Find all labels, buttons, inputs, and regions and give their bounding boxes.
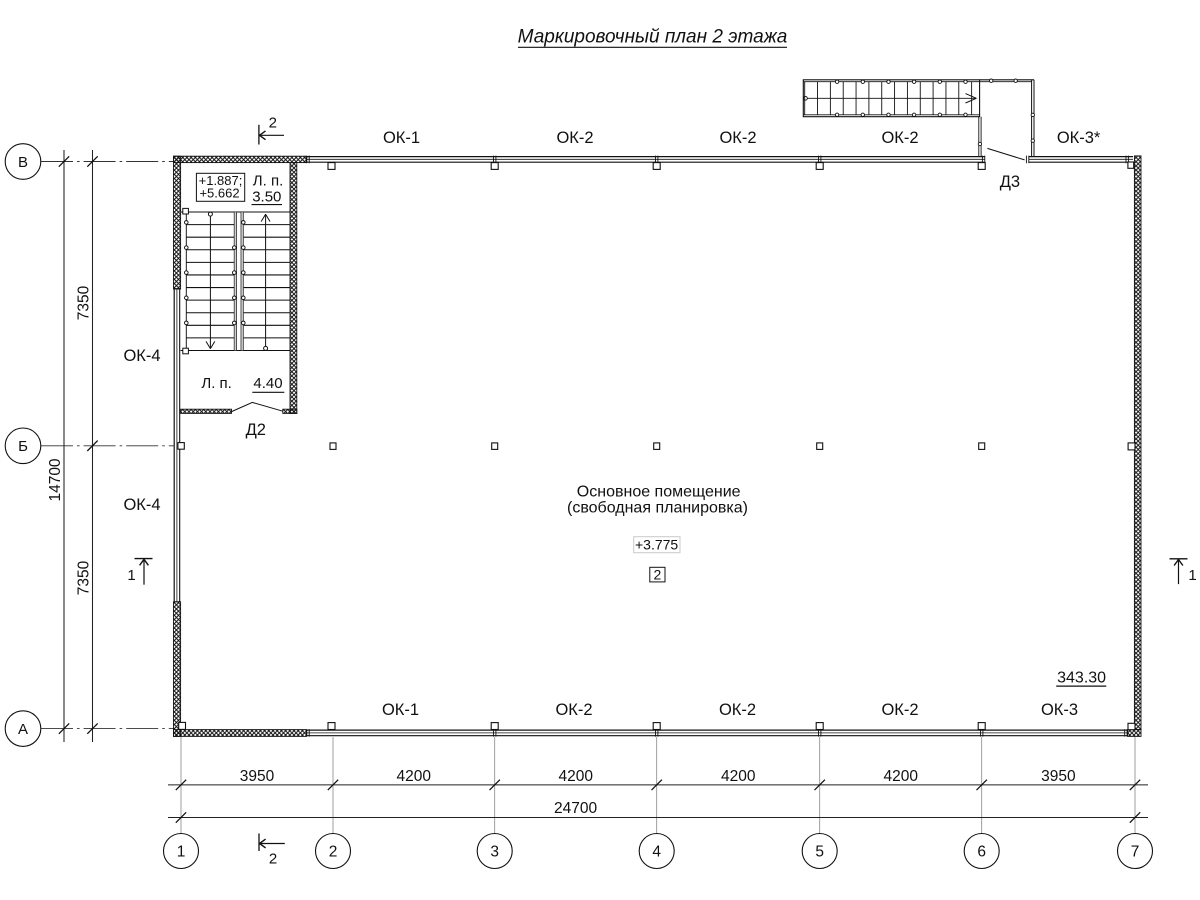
svg-text:3950: 3950 (240, 768, 275, 785)
svg-text:ОК-2: ОК-2 (556, 129, 593, 147)
svg-text:ОК-2: ОК-2 (881, 129, 918, 147)
svg-text:4: 4 (652, 843, 661, 860)
svg-text:4200: 4200 (397, 768, 432, 785)
svg-text:1: 1 (127, 567, 135, 584)
svg-text:Основное помещение: Основное помещение (577, 483, 741, 500)
svg-text:Д3: Д3 (1000, 173, 1020, 191)
svg-text:ОК-1: ОК-1 (383, 129, 420, 147)
svg-text:Л. п.: Л. п. (201, 375, 231, 392)
svg-text:4200: 4200 (558, 768, 593, 785)
svg-text:+3.775: +3.775 (635, 536, 678, 552)
svg-text:4.40: 4.40 (253, 375, 282, 392)
svg-text:Д2: Д2 (246, 421, 266, 439)
svg-text:В: В (18, 154, 28, 171)
svg-text:ОК-1: ОК-1 (382, 701, 419, 719)
svg-text:7: 7 (1131, 843, 1140, 860)
svg-text:Б: Б (18, 438, 28, 455)
svg-text:Л. п.: Л. п. (253, 172, 283, 189)
svg-text:+5.662: +5.662 (199, 186, 239, 201)
svg-text:6: 6 (977, 843, 986, 860)
svg-text:1: 1 (1188, 567, 1196, 584)
svg-text:3950: 3950 (1041, 768, 1076, 785)
svg-text:ОК-2: ОК-2 (719, 701, 756, 719)
svg-text:14700: 14700 (47, 458, 64, 501)
svg-text:3.50: 3.50 (252, 188, 281, 205)
svg-text:А: А (18, 721, 28, 738)
svg-text:ОК-3: ОК-3 (1041, 701, 1078, 719)
svg-text:1: 1 (177, 843, 186, 860)
svg-text:ОК-4: ОК-4 (123, 347, 160, 365)
svg-text:4200: 4200 (721, 768, 756, 785)
svg-text:3: 3 (490, 843, 499, 860)
svg-text:ОК-2: ОК-2 (881, 701, 918, 719)
svg-text:Маркировочный план 2 этажа: Маркировочный план 2 этажа (518, 27, 788, 48)
svg-text:2: 2 (269, 115, 277, 132)
svg-text:(свободная планировка): (свободная планировка) (567, 500, 748, 517)
svg-text:ОК-3*: ОК-3* (1057, 129, 1101, 147)
svg-text:4200: 4200 (883, 768, 918, 785)
svg-text:24700: 24700 (554, 800, 597, 817)
svg-text:2: 2 (654, 566, 662, 582)
svg-text:2: 2 (329, 843, 338, 860)
svg-text:343.30: 343.30 (1057, 669, 1106, 686)
svg-text:ОК-2: ОК-2 (719, 129, 756, 147)
svg-text:2: 2 (269, 850, 277, 867)
svg-text:ОК-4: ОК-4 (123, 496, 160, 514)
svg-text:ОК-2: ОК-2 (555, 701, 592, 719)
svg-text:5: 5 (815, 843, 824, 860)
svg-text:7350: 7350 (75, 560, 92, 595)
svg-text:7350: 7350 (75, 285, 92, 320)
